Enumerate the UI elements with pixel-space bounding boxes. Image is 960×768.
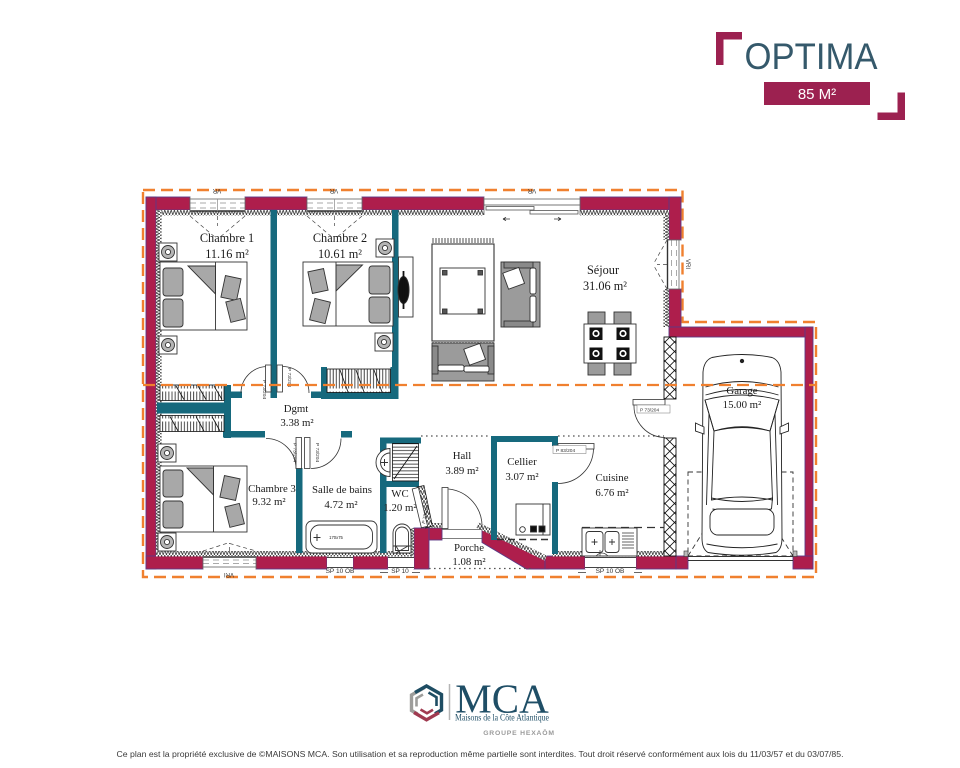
svg-text:P 73/204: P 73/204 — [314, 443, 320, 462]
svg-text:SP 10 OB: SP 10 OB — [326, 568, 355, 575]
svg-text:3.07 m²: 3.07 m² — [505, 471, 538, 483]
svg-text:OPTIMA: OPTIMA — [745, 36, 878, 77]
svg-text:31.06 m²: 31.06 m² — [583, 279, 627, 293]
svg-text:Dgmt: Dgmt — [284, 403, 309, 415]
svg-text:6.76 m²: 6.76 m² — [595, 487, 628, 499]
svg-text:170x75: 170x75 — [329, 535, 343, 540]
svg-text:15.00 m²: 15.00 m² — [723, 399, 762, 411]
svg-text:VRI: VRI — [224, 571, 234, 577]
svg-text:SP 10 OB: SP 10 OB — [596, 568, 625, 575]
svg-text:Maisons de la Côte Atlantique: Maisons de la Côte Atlantique — [455, 714, 549, 724]
svg-text:Garage: Garage — [726, 385, 757, 397]
svg-text:P 73/204: P 73/204 — [261, 380, 267, 399]
svg-text:VR: VR — [329, 187, 338, 193]
svg-text:Ce plan est la propriété exclu: Ce plan est la propriété exclusive de ©M… — [116, 749, 843, 759]
svg-text:11.16 m²: 11.16 m² — [205, 247, 249, 261]
svg-text:VRI: VRI — [684, 259, 690, 269]
svg-text:Hall: Hall — [453, 450, 472, 462]
svg-text:4.72 m²: 4.72 m² — [324, 499, 357, 511]
svg-text:SP 10: SP 10 — [391, 568, 409, 575]
svg-text:Porche: Porche — [454, 542, 484, 554]
svg-text:P 73/204: P 73/204 — [292, 443, 298, 462]
svg-text:VR: VR — [527, 187, 536, 193]
svg-text:Cuisine: Cuisine — [596, 472, 629, 484]
svg-text:9.32 m²: 9.32 m² — [252, 496, 285, 508]
svg-text:Chambre 1: Chambre 1 — [200, 231, 254, 245]
svg-text:3.89 m²: 3.89 m² — [445, 465, 478, 477]
svg-text:WC: WC — [391, 488, 408, 500]
svg-text:Cellier: Cellier — [507, 456, 537, 468]
svg-text:85 M²: 85 M² — [798, 86, 836, 103]
svg-text:1.20 m²: 1.20 m² — [383, 502, 416, 514]
svg-text:10.61 m²: 10.61 m² — [318, 247, 362, 261]
svg-text:VR: VR — [212, 187, 221, 193]
svg-text:3.38 m²: 3.38 m² — [280, 417, 313, 429]
svg-text:1.08 m²: 1.08 m² — [452, 556, 485, 568]
svg-text:P 73/204: P 73/204 — [640, 408, 659, 414]
svg-text:Chambre 3: Chambre 3 — [248, 483, 296, 495]
svg-text:Salle de bains: Salle de bains — [312, 484, 372, 496]
svg-text:Séjour: Séjour — [587, 263, 619, 277]
svg-text:GROUPE HEXAŌM: GROUPE HEXAŌM — [483, 729, 555, 737]
svg-text:Chambre 2: Chambre 2 — [313, 231, 367, 245]
svg-text:P 83/204: P 83/204 — [556, 448, 575, 454]
